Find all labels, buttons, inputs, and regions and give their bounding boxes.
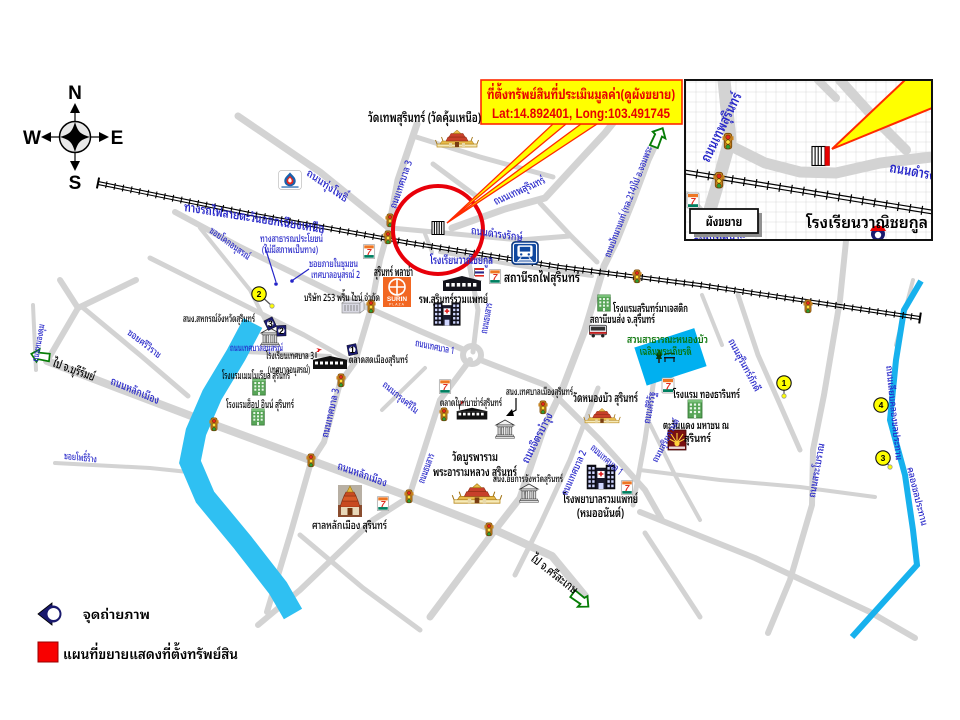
svg-text:E: E	[111, 128, 124, 149]
svg-text:1: 1	[350, 345, 355, 355]
svg-text:2: 2	[257, 289, 262, 299]
svg-text:N: N	[68, 83, 82, 104]
svg-text:3: 3	[881, 453, 886, 463]
svg-text:Lat:14.892401, Long:103.491745: Lat:14.892401, Long:103.491745	[492, 106, 670, 121]
svg-text:1: 1	[782, 378, 787, 388]
svg-text:2: 2	[279, 326, 284, 336]
svg-text:3: 3	[268, 319, 273, 329]
svg-text:W: W	[23, 128, 41, 149]
svg-text:S: S	[69, 173, 82, 194]
svg-text:4: 4	[879, 400, 884, 410]
